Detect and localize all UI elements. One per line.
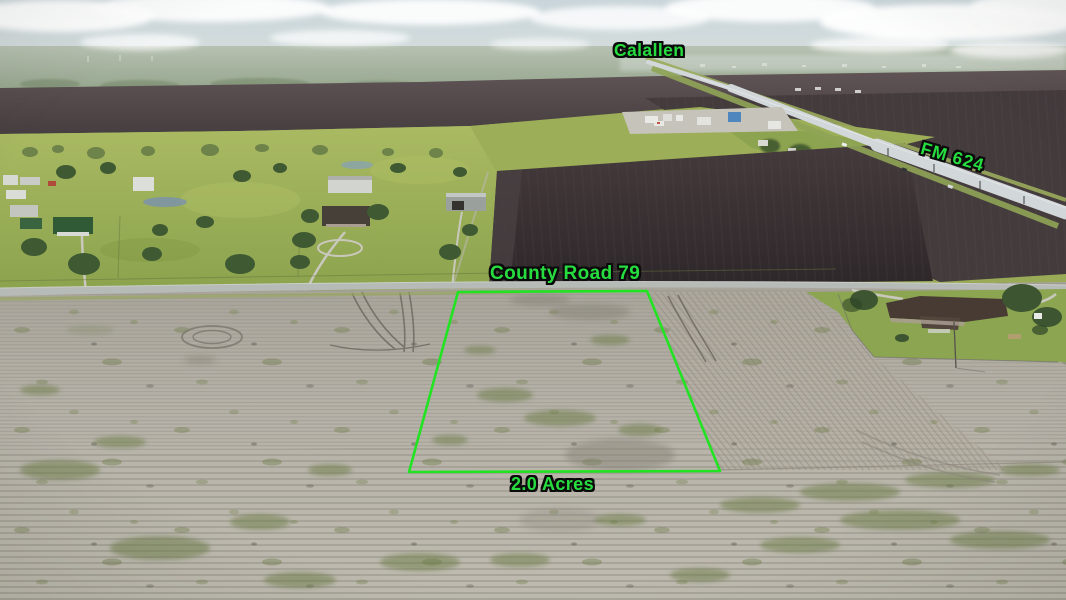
aerial-scene [0, 0, 1066, 600]
acreage-label: 2.0 Acres [511, 474, 594, 495]
vignette [0, 0, 1066, 600]
county-road-label: County Road 79 [490, 263, 640, 285]
aerial-photo: Calallen FM 624 County Road 79 2.0 Acres [0, 0, 1066, 600]
town-label: Calallen [614, 40, 684, 61]
